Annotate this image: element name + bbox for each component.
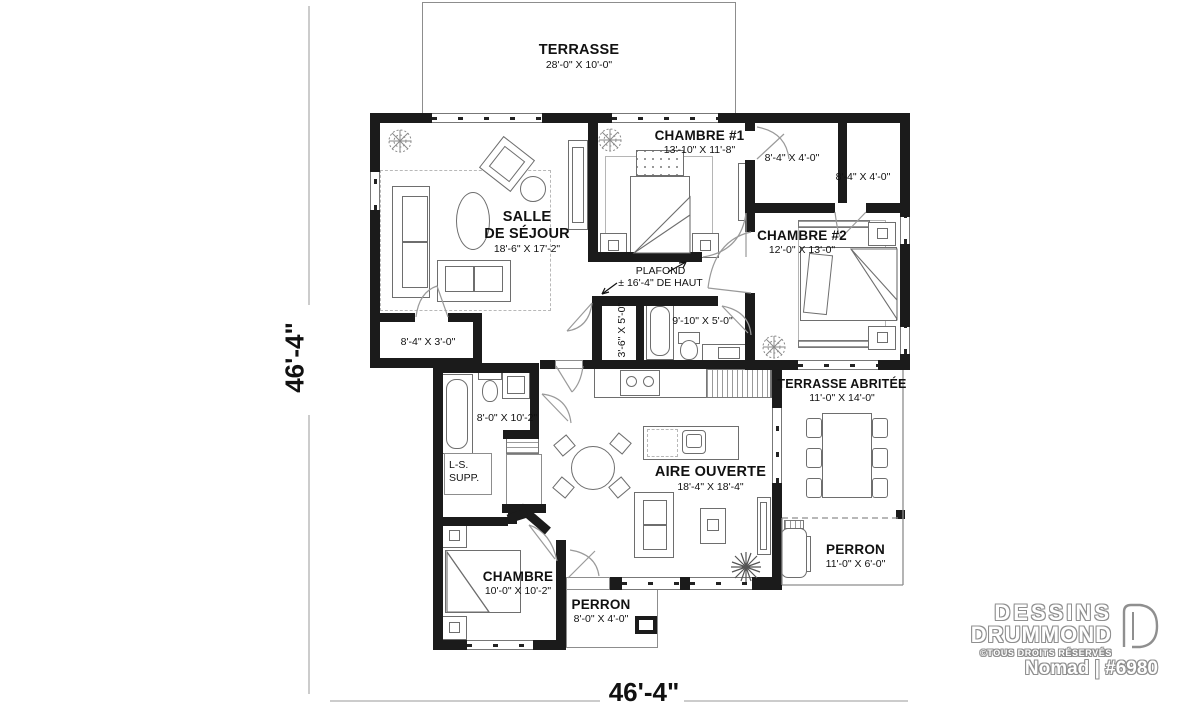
patio-chair-l1	[806, 418, 822, 438]
laundry-line1: L-S.	[449, 459, 479, 472]
cabinet-tall-inner	[760, 502, 767, 550]
wall	[636, 306, 644, 368]
room-name: CHAMBRE #1	[612, 128, 787, 144]
sofa-left-seat	[402, 196, 428, 242]
window	[798, 360, 878, 370]
wall	[878, 360, 910, 370]
window	[467, 640, 533, 650]
dimension-left: 46'-4"	[280, 315, 311, 401]
laundry-label: L-S. SUPP.	[449, 459, 479, 485]
patio-chair-r2	[872, 448, 888, 468]
wall	[866, 203, 910, 213]
dining-chair-ne	[609, 432, 632, 454]
wall	[772, 483, 782, 577]
plant-icon	[389, 130, 411, 152]
room-dim: 8'-4" X 4'-0"	[737, 152, 847, 164]
wall	[503, 430, 539, 439]
window	[370, 172, 380, 210]
wall	[433, 363, 443, 650]
bed1	[630, 176, 690, 254]
floor-plan: TERRASSE 28'-0" X 10'-0" SALLE DE SÉJOUR…	[0, 0, 1200, 711]
island-sink-basin	[686, 434, 702, 448]
room-label-terrasse: TERRASSE 28'-0" X 10'-0"	[489, 42, 669, 71]
room-dim: 10'-0" X 10'-2"	[453, 585, 583, 597]
nightstand3a-lamp	[449, 530, 460, 541]
sink-main	[718, 347, 740, 359]
room-dim: 8'-4" X 3'-0"	[373, 336, 483, 348]
room-label-chambre2: CHAMBRE #2 12'-0" X 13'-0"	[728, 228, 876, 256]
patio-chair-r1	[872, 418, 888, 438]
ceiling-note: PLAFOND ± 16'-4" DE HAUT	[593, 265, 728, 290]
brand-line2: DRUMMOND	[940, 624, 1112, 646]
nightstand1a-lamp	[608, 240, 619, 251]
sofa-bottom-seat	[445, 266, 474, 292]
wall	[592, 296, 718, 306]
room-name: TERRASSE ABRITÉE	[776, 377, 908, 392]
room-dim: 18'-4" X 18'-4"	[618, 481, 803, 493]
dimension-bottom: 46'-4"	[594, 677, 694, 708]
post	[896, 510, 905, 519]
plant-icon	[763, 336, 785, 358]
room-dim: 8'-0" X 10'-2"	[452, 412, 562, 424]
room-name: TERRASSE	[489, 42, 669, 59]
island-hatch	[647, 429, 678, 457]
nightstand2b-lamp	[877, 332, 888, 343]
door-sill	[555, 360, 583, 369]
room-dim: 11'-0" X 6'-0"	[798, 558, 913, 570]
wall	[433, 363, 539, 373]
room-label-perron-cote: PERRON 11'-0" X 6'-0"	[798, 542, 913, 570]
laundry-line2: SUPP.	[449, 472, 479, 485]
nightstand1b-lamp	[700, 240, 711, 251]
linen-shelves	[506, 437, 539, 454]
wall	[900, 113, 910, 217]
sofa-left-seat2	[402, 242, 428, 288]
dining-chair-sw	[552, 476, 575, 498]
window	[622, 577, 680, 590]
bathtub-main-inner	[650, 306, 670, 356]
window	[612, 113, 718, 123]
nightstand3b-lamp	[449, 622, 460, 633]
wall	[745, 293, 755, 370]
brand-copyright: ©TOUS DROITS RÉSERVÉS	[940, 649, 1112, 658]
wall	[433, 640, 467, 650]
wall	[718, 113, 910, 123]
brand-line1: DESSINS	[940, 602, 1112, 624]
room-label-vestiaire: 8'-4" X 3'-0"	[373, 336, 483, 348]
room-label-aire-ouverte: AIRE OUVERTE 18'-4" X 18'-4"	[618, 464, 803, 493]
room-label-bain2: 8'-0" X 10'-2"	[452, 412, 562, 424]
toilet-main-bowl	[680, 340, 698, 360]
room-dim: 11'-0" X 14'-0"	[776, 392, 908, 404]
wall	[592, 296, 602, 368]
wall	[370, 113, 380, 172]
wall	[542, 113, 612, 123]
side-table-ao-lamp	[707, 519, 719, 531]
room-label-walkin3: 3'-6" X 5'-0"	[616, 290, 628, 370]
patio-chair-l2	[806, 448, 822, 468]
wall	[900, 244, 910, 327]
wall	[610, 577, 622, 590]
room-dim: 28'-0" X 10'-0"	[489, 59, 669, 71]
side-table-round	[520, 176, 546, 202]
closet-hall	[506, 454, 542, 506]
room-label-walkin1: 8'-4" X 4'-0"	[737, 152, 847, 164]
brand-block: DESSINS DRUMMOND ©TOUS DROITS RÉSERVÉS	[940, 602, 1112, 658]
patio-chair-l3	[806, 478, 822, 498]
wall	[540, 360, 555, 369]
room-dim: 12'-0" X 13'-0"	[728, 244, 876, 256]
plan-model-number: Nomad | #6980	[988, 658, 1158, 680]
room-label-bain: 9'-10" X 5'-0"	[645, 315, 760, 327]
room-dim: 3'-6" X 5'-0"	[616, 290, 628, 370]
wall	[583, 360, 780, 369]
room-name: PERRON	[556, 597, 646, 613]
room-dim: 18'-6" X 17'-2"	[447, 243, 607, 255]
patio-table	[822, 413, 872, 498]
room-name: CHAMBRE	[453, 569, 583, 585]
wall	[750, 203, 835, 213]
window	[900, 327, 910, 354]
chambre2-rug-edge-top	[798, 220, 870, 228]
sofa-aire-ouverte-seat	[643, 500, 667, 525]
room-label-walkin2: 8'-4" X 4'-0"	[808, 171, 918, 183]
room-name: SALLE	[447, 209, 607, 226]
room-name: CHAMBRE #2	[728, 228, 876, 244]
dining-chair-nw	[553, 434, 576, 456]
room-dim: 8'-4" X 4'-0"	[808, 171, 918, 183]
toilet2-bowl	[482, 380, 498, 402]
ceiling-note-line2: ± 16'-4" DE HAUT	[593, 277, 728, 289]
wall	[533, 640, 566, 650]
ceiling-note-line1: PLAFOND	[593, 265, 728, 277]
stove-burner-right	[643, 376, 654, 387]
sofa-bottom-seat2	[474, 266, 503, 292]
window	[900, 217, 910, 244]
drummond-logo-icon	[1124, 605, 1157, 647]
room-name: DE SÉJOUR	[447, 226, 607, 243]
room-label-chambre3: CHAMBRE 10'-0" X 10'-2"	[453, 569, 583, 597]
sofa-aire-ouverte-seat2	[643, 525, 667, 550]
room-label-perron-avant: PERRON 8'-0" X 4'-0"	[556, 597, 646, 625]
room-label-terrasse-abritee: TERRASSE ABRITÉE 11'-0" X 14'-0"	[776, 377, 908, 404]
room-dim: 9'-10" X 5'-0"	[645, 315, 760, 327]
wall	[530, 363, 539, 439]
patio-chair-r3	[872, 478, 888, 498]
wall	[680, 577, 690, 590]
wall	[370, 313, 415, 322]
wall	[752, 577, 782, 590]
wall	[435, 517, 508, 526]
window	[432, 113, 542, 123]
dining-table-round	[571, 446, 615, 490]
room-name: PERRON	[798, 542, 913, 558]
room-label-sejour: SALLE DE SÉJOUR 18'-6" X 17'-2"	[447, 209, 607, 256]
room-name: AIRE OUVERTE	[618, 464, 803, 481]
window	[690, 577, 752, 590]
sink2-basin	[507, 376, 525, 394]
room-dim: 8'-0" X 4'-0"	[556, 613, 646, 625]
kitchen-pantry	[706, 369, 771, 398]
wall	[508, 504, 517, 524]
stove-burner-left	[626, 376, 637, 387]
nightstand2a-lamp	[877, 228, 888, 239]
